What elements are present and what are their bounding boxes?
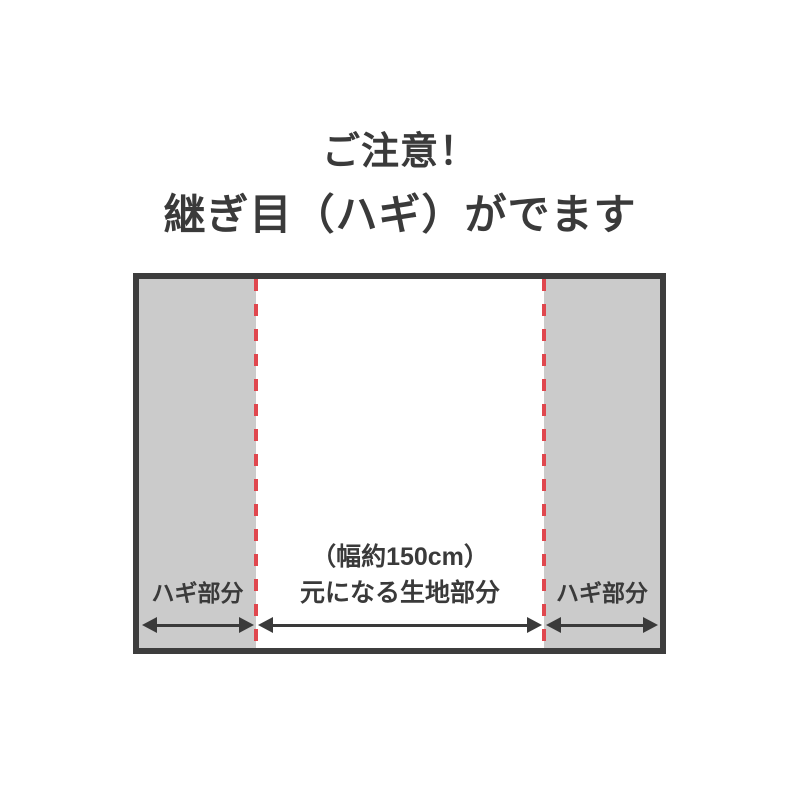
fabric-width-diagram: ハギ部分 （幅約150cm） 元になる生地部分 ハギ部分 bbox=[133, 273, 666, 654]
arrow-shaft bbox=[268, 624, 532, 627]
arrow-shaft bbox=[152, 624, 244, 627]
page-title: ご注意！ bbox=[0, 120, 800, 175]
main-fabric-width-label: （幅約150cm） bbox=[256, 545, 544, 570]
main-fabric-label: （幅約150cm） 元になる生地部分 bbox=[256, 545, 544, 606]
seam-section-left: ハギ部分 bbox=[139, 279, 256, 648]
width-arrow-right-seam bbox=[546, 616, 658, 634]
arrowhead-right-icon bbox=[239, 617, 254, 633]
width-arrow-main-fabric bbox=[258, 616, 542, 634]
seam-section-left-label: ハギ部分 bbox=[139, 581, 256, 606]
main-fabric-name-label: 元になる生地部分 bbox=[256, 581, 544, 606]
seam-section-right-label: ハギ部分 bbox=[544, 581, 660, 606]
arrowhead-right-icon bbox=[643, 617, 658, 633]
seam-section-right: ハギ部分 bbox=[544, 279, 660, 648]
main-fabric-section: （幅約150cm） 元になる生地部分 bbox=[256, 279, 544, 648]
page-subtitle: 継ぎ目（ハギ）がでます bbox=[0, 181, 800, 242]
seam-dashed-line-left bbox=[254, 279, 258, 648]
arrow-shaft bbox=[556, 624, 648, 627]
page: ご注意！ 継ぎ目（ハギ）がでます ハギ部分 （幅約150cm） 元になる生地部分… bbox=[0, 0, 800, 800]
arrowhead-right-icon bbox=[527, 617, 542, 633]
width-arrow-left-seam bbox=[142, 616, 254, 634]
seam-dashed-line-right bbox=[542, 279, 546, 648]
